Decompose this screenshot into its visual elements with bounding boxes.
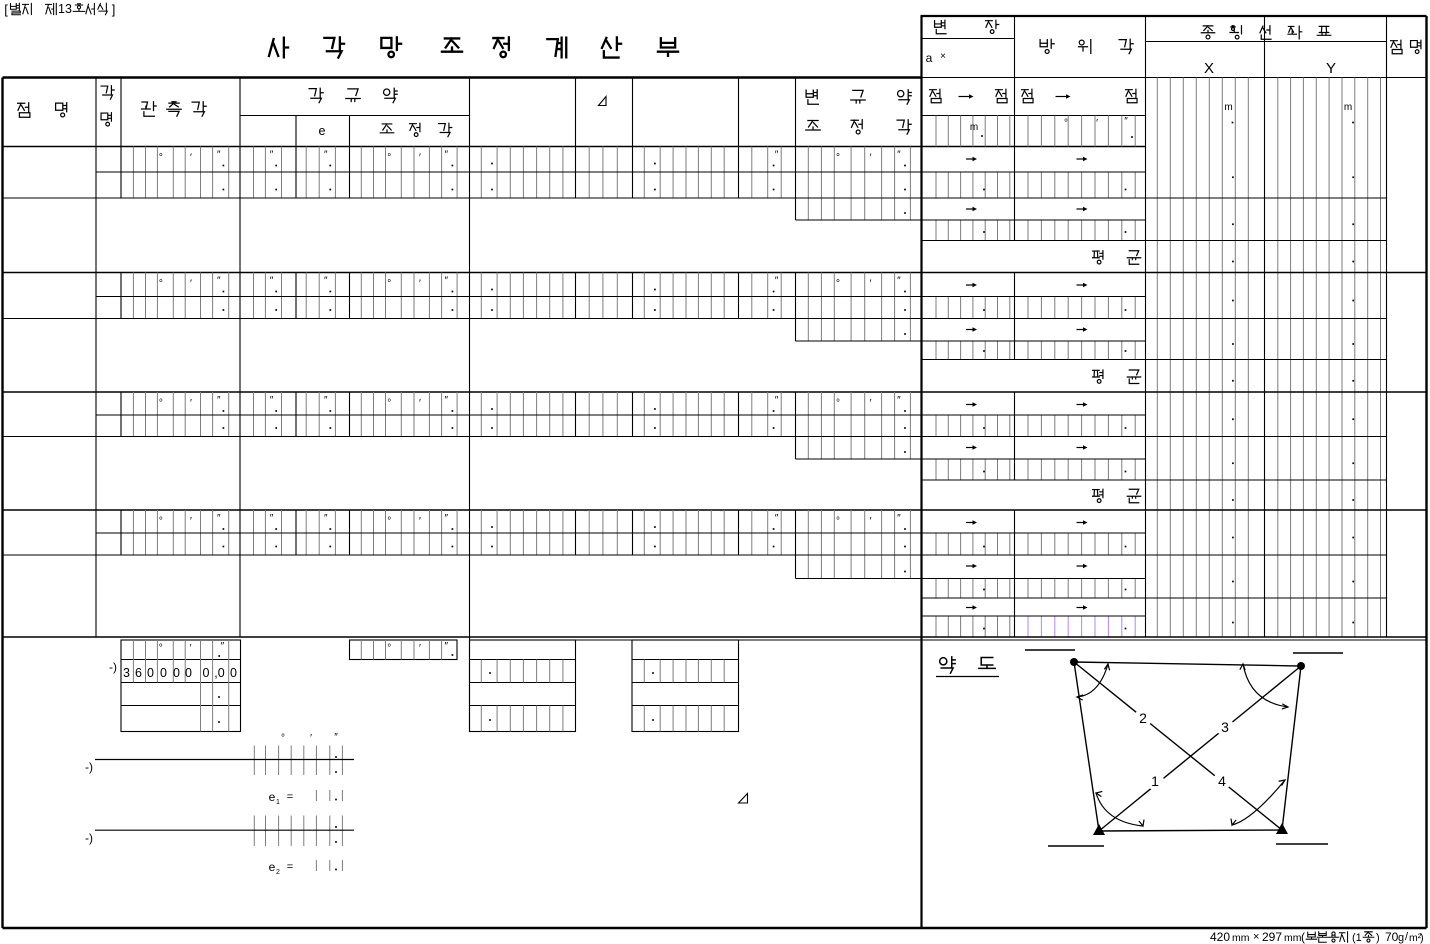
svg-text:e: e bbox=[319, 124, 326, 138]
svg-text:a: a bbox=[926, 51, 933, 65]
svg-text:′: ′ bbox=[419, 643, 421, 654]
svg-text:mm: mm bbox=[1284, 932, 1302, 944]
svg-text:e: e bbox=[269, 860, 276, 874]
svg-text:4: 4 bbox=[1218, 773, 1226, 789]
svg-text:″: ″ bbox=[775, 150, 779, 161]
svg-text:×: × bbox=[940, 51, 946, 62]
svg-text:0: 0 bbox=[230, 666, 237, 680]
svg-text:′: ′ bbox=[190, 279, 192, 290]
svg-text:-): -) bbox=[85, 831, 93, 845]
svg-text:297: 297 bbox=[1262, 930, 1282, 944]
svg-text:): ) bbox=[1376, 932, 1380, 944]
svg-text:″: ″ bbox=[217, 276, 221, 287]
svg-text:″: ″ bbox=[897, 395, 901, 406]
svg-text:m: m bbox=[1224, 102, 1232, 113]
svg-text:″: ″ bbox=[775, 513, 779, 524]
svg-text:′: ′ bbox=[419, 279, 421, 290]
svg-text:′: ′ bbox=[190, 643, 192, 654]
svg-text:=: = bbox=[287, 791, 293, 803]
svg-text:0: 0 bbox=[203, 666, 210, 680]
svg-text:″: ″ bbox=[324, 513, 328, 524]
svg-text:″: ″ bbox=[324, 276, 328, 287]
svg-text:°: ° bbox=[836, 279, 840, 290]
svg-text:″: ″ bbox=[775, 276, 779, 287]
svg-text:′: ′ bbox=[419, 153, 421, 164]
svg-text:°: ° bbox=[836, 516, 840, 527]
svg-text:1: 1 bbox=[276, 799, 280, 806]
svg-text:×: × bbox=[1253, 931, 1259, 943]
svg-text:′: ′ bbox=[870, 516, 872, 527]
svg-text:°: ° bbox=[387, 153, 391, 164]
svg-text:″: ″ bbox=[445, 513, 449, 524]
svg-text:g: g bbox=[1398, 932, 1404, 944]
svg-text:): ) bbox=[1420, 932, 1424, 944]
svg-text:[: [ bbox=[4, 2, 8, 17]
svg-text:2: 2 bbox=[276, 869, 280, 876]
svg-text:′: ′ bbox=[190, 516, 192, 527]
svg-text:420: 420 bbox=[1210, 930, 1230, 944]
svg-text:-): -) bbox=[109, 660, 117, 674]
svg-text:=: = bbox=[287, 861, 293, 873]
svg-text:″: ″ bbox=[445, 395, 449, 406]
svg-text:X: X bbox=[1204, 60, 1214, 77]
svg-text:°: ° bbox=[836, 398, 840, 409]
svg-text:′: ′ bbox=[870, 153, 872, 164]
svg-text:m: m bbox=[970, 122, 978, 133]
svg-text:°: ° bbox=[159, 643, 163, 654]
svg-text:″: ″ bbox=[270, 276, 274, 287]
svg-text:mm: mm bbox=[1232, 932, 1250, 944]
svg-text:″: ″ bbox=[775, 395, 779, 406]
svg-text:″: ″ bbox=[324, 395, 328, 406]
svg-text:(1: (1 bbox=[1352, 932, 1362, 944]
svg-text:13: 13 bbox=[58, 2, 72, 16]
svg-text:′: ′ bbox=[419, 398, 421, 409]
svg-text:″: ″ bbox=[445, 276, 449, 287]
svg-text:°: ° bbox=[159, 279, 163, 290]
svg-text:e: e bbox=[269, 790, 276, 804]
svg-text:°: ° bbox=[836, 153, 840, 164]
svg-text:′: ′ bbox=[1096, 118, 1098, 129]
svg-text:°: ° bbox=[159, 153, 163, 164]
svg-text:°: ° bbox=[159, 398, 163, 409]
svg-text:″: ″ bbox=[1124, 116, 1128, 127]
svg-text:°: ° bbox=[281, 733, 285, 744]
svg-text:°: ° bbox=[159, 516, 163, 527]
svg-text:″: ″ bbox=[270, 513, 274, 524]
svg-text:°: ° bbox=[387, 279, 391, 290]
svg-text:″: ″ bbox=[445, 150, 449, 161]
svg-text:2: 2 bbox=[1139, 710, 1147, 726]
svg-text:″: ″ bbox=[217, 395, 221, 406]
svg-text:″: ″ bbox=[897, 513, 901, 524]
svg-text:″: ″ bbox=[270, 395, 274, 406]
svg-text:0: 0 bbox=[185, 666, 192, 680]
svg-text:″: ″ bbox=[897, 276, 901, 287]
svg-text:″: ″ bbox=[221, 641, 225, 652]
svg-text:0: 0 bbox=[173, 666, 180, 680]
svg-text:0: 0 bbox=[147, 666, 154, 680]
svg-text:′: ′ bbox=[870, 279, 872, 290]
svg-text:-): -) bbox=[85, 760, 93, 774]
svg-text:″: ″ bbox=[324, 150, 328, 161]
svg-text:′: ′ bbox=[190, 398, 192, 409]
svg-text:″: ″ bbox=[270, 150, 274, 161]
svg-text:0: 0 bbox=[160, 666, 167, 680]
svg-text:″: ″ bbox=[217, 513, 221, 524]
svg-text:(: ( bbox=[1301, 930, 1305, 944]
svg-text:″: ″ bbox=[897, 150, 901, 161]
svg-text:°: ° bbox=[1064, 118, 1068, 129]
svg-text:3: 3 bbox=[123, 666, 130, 680]
svg-text:6: 6 bbox=[135, 666, 142, 680]
svg-text:′: ′ bbox=[870, 398, 872, 409]
svg-text:″: ″ bbox=[334, 732, 338, 743]
svg-text:°: ° bbox=[387, 516, 391, 527]
svg-text:″: ″ bbox=[445, 641, 449, 652]
svg-text:′: ′ bbox=[419, 516, 421, 527]
svg-text:″: ″ bbox=[217, 150, 221, 161]
svg-text:°: ° bbox=[387, 643, 391, 654]
svg-text:°: ° bbox=[387, 398, 391, 409]
svg-text:′: ′ bbox=[310, 733, 312, 744]
svg-text:]: ] bbox=[112, 2, 116, 17]
svg-text:Y: Y bbox=[1326, 60, 1336, 77]
svg-text:70: 70 bbox=[1385, 930, 1399, 944]
svg-text:′: ′ bbox=[190, 153, 192, 164]
svg-text:m: m bbox=[1344, 102, 1352, 113]
svg-text:3: 3 bbox=[1221, 719, 1229, 735]
svg-text:1: 1 bbox=[1151, 773, 1159, 789]
svg-text:,0: ,0 bbox=[214, 666, 224, 680]
